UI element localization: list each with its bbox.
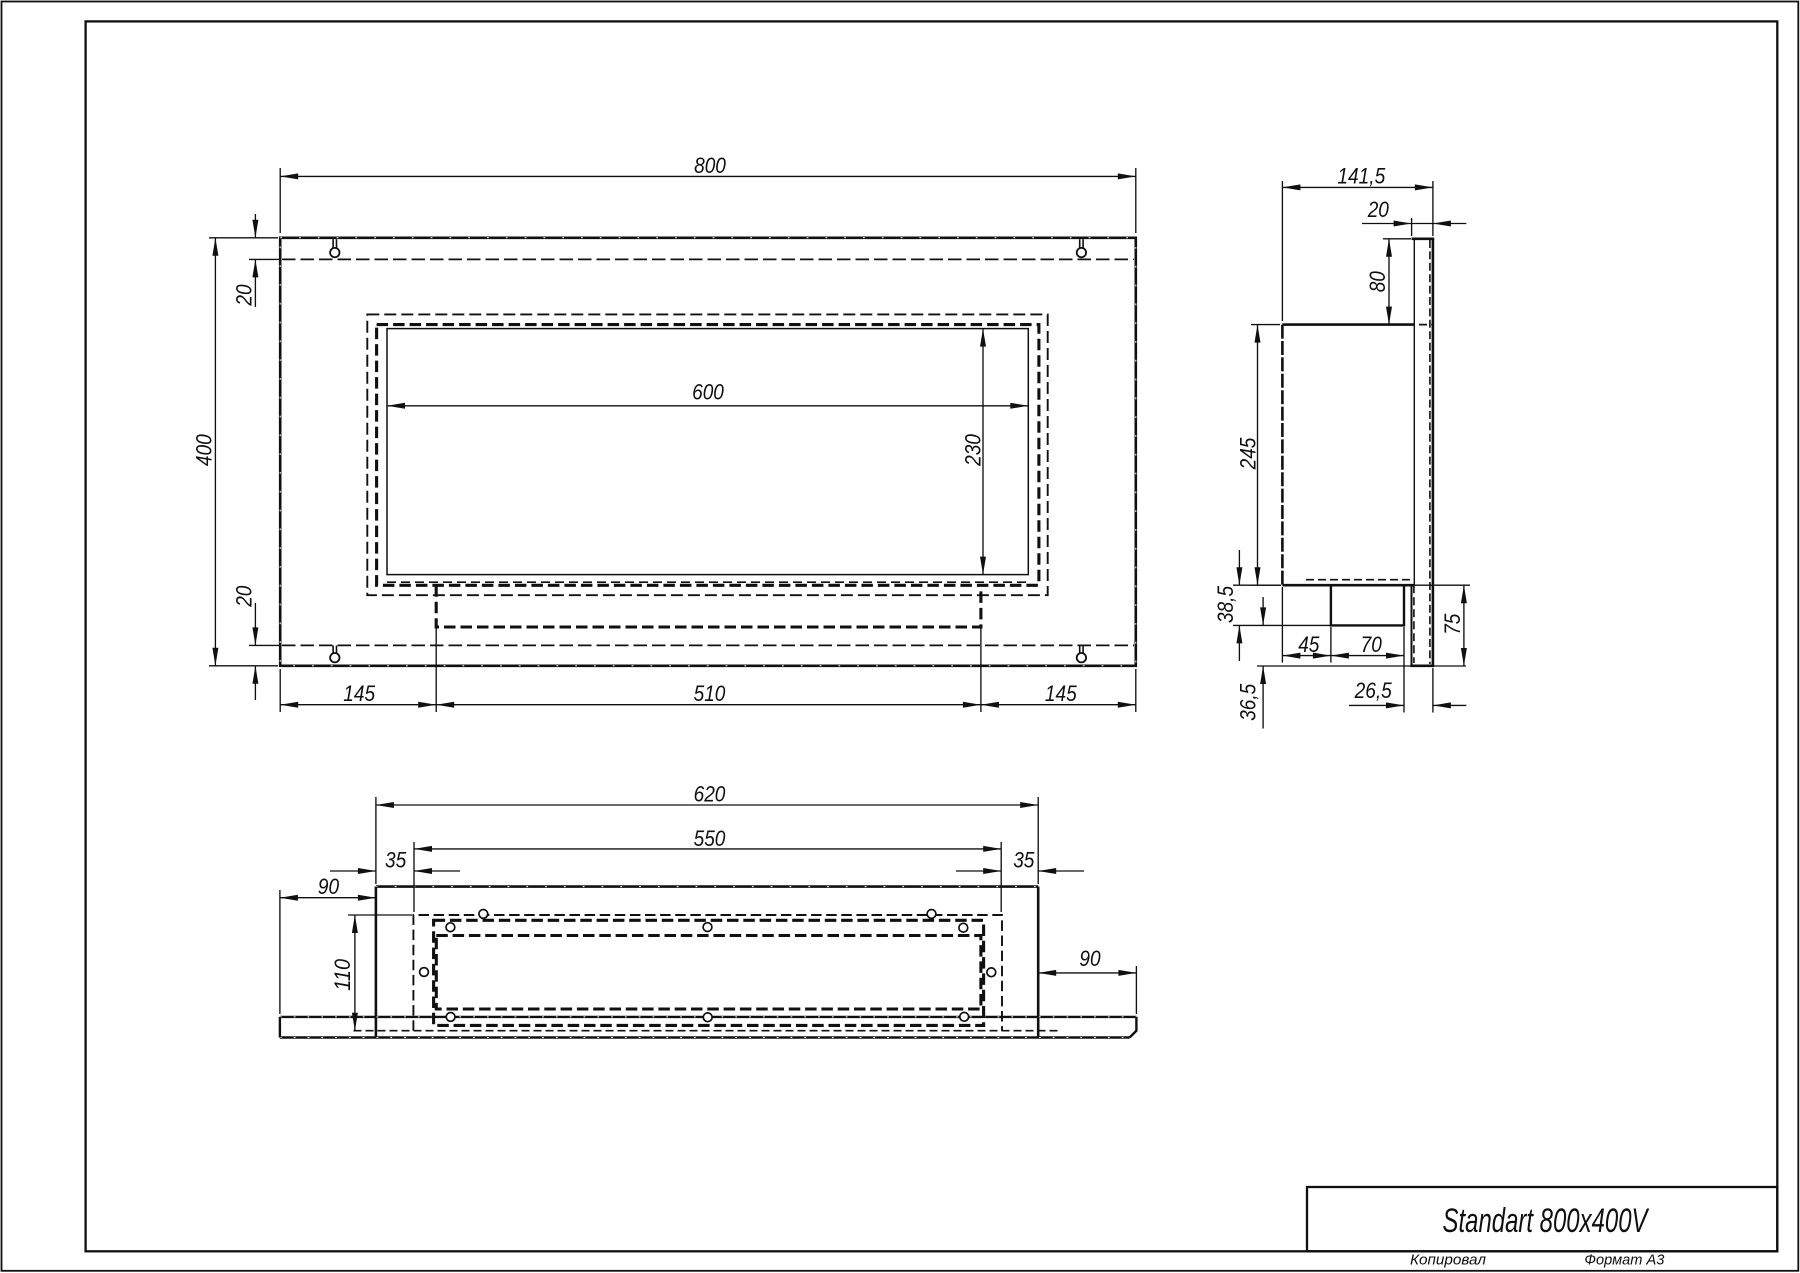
svg-text:620: 620 <box>694 782 726 807</box>
svg-text:35: 35 <box>1013 848 1035 873</box>
svg-text:90: 90 <box>1079 946 1101 971</box>
svg-text:Standart 800x400V: Standart 800x400V <box>1443 1202 1650 1240</box>
svg-text:Формат А3: Формат А3 <box>1584 1252 1665 1268</box>
svg-text:80: 80 <box>1365 270 1390 292</box>
svg-text:26,5: 26,5 <box>1354 678 1393 703</box>
svg-text:38,5: 38,5 <box>1213 585 1238 623</box>
svg-text:20: 20 <box>232 585 257 608</box>
svg-text:75: 75 <box>1440 613 1465 635</box>
svg-text:36,5: 36,5 <box>1235 683 1260 721</box>
svg-text:245: 245 <box>1236 437 1261 470</box>
svg-text:141,5: 141,5 <box>1337 163 1385 188</box>
svg-text:Копировал: Копировал <box>1410 1252 1486 1268</box>
svg-text:800: 800 <box>694 153 726 178</box>
svg-text:230: 230 <box>960 433 985 466</box>
svg-text:550: 550 <box>694 826 726 851</box>
svg-text:20: 20 <box>232 284 257 307</box>
svg-text:45: 45 <box>1298 632 1320 657</box>
svg-text:70: 70 <box>1361 632 1383 657</box>
svg-text:110: 110 <box>330 958 355 990</box>
svg-text:20: 20 <box>1367 197 1390 222</box>
svg-text:90: 90 <box>318 874 340 899</box>
svg-text:400: 400 <box>192 434 217 466</box>
svg-text:510: 510 <box>694 681 726 706</box>
svg-text:600: 600 <box>692 379 724 404</box>
svg-text:145: 145 <box>1045 681 1077 706</box>
svg-text:35: 35 <box>385 848 407 873</box>
svg-text:145: 145 <box>343 681 375 706</box>
